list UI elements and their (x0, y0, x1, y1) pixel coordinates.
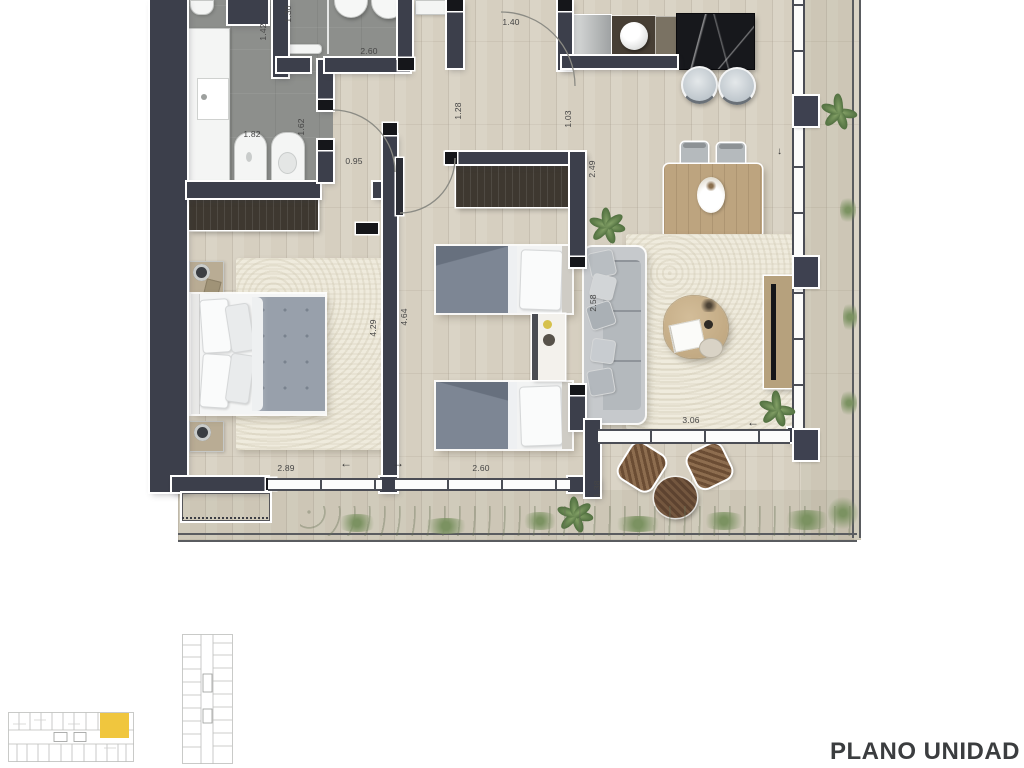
shrub-vine (841, 388, 857, 418)
wall-bedroom-divider (383, 135, 397, 477)
dim-label: 1.82 (237, 129, 267, 139)
window-bedroom1 (268, 478, 382, 491)
laundry-fixture (415, 0, 449, 15)
wall-end-cap (558, 0, 572, 11)
dim-label: 2.89 (271, 463, 301, 473)
bidet-drain-icon (246, 152, 252, 162)
wall-bedroom2-top (447, 152, 585, 164)
wall-bath2-bottom-a (277, 58, 310, 72)
twig-decor-icon (700, 299, 718, 312)
keyplan-floor-vertical (182, 634, 233, 764)
shrub (335, 514, 379, 532)
wall-bedroom2-right-upper (570, 152, 585, 267)
door-stop (318, 140, 333, 150)
nightstand-between-beds (532, 314, 565, 380)
slide-arrow-right-icon: → (392, 458, 404, 468)
door-leaf-bedroom2 (396, 158, 403, 215)
dim-label: 2.60 (354, 46, 384, 56)
dining-chair-1 (681, 142, 708, 166)
shrub-vine (840, 195, 856, 225)
faucet-icon (201, 94, 207, 100)
tray-icon (699, 338, 723, 358)
shrub (420, 518, 472, 534)
wall-end-cap (570, 257, 585, 267)
sheet-fold (252, 297, 263, 411)
lamp-icon (194, 424, 211, 441)
dim-label: 4.29 (368, 313, 378, 343)
deco-flower-icon (543, 320, 552, 329)
dim-label: 2.49 (587, 154, 597, 184)
dim-label: 1.38 (592, 474, 602, 504)
railing-planter-1 (794, 96, 818, 126)
headboard (191, 294, 200, 414)
dim-label: 1.28 (453, 96, 463, 126)
wall-end-cap (398, 58, 414, 70)
wall-end-cap (445, 152, 457, 164)
slide-arrow-down-icon: ↓ (777, 147, 782, 157)
dim-label: 2.60 (466, 463, 496, 473)
wall-bath2-right (398, 0, 412, 58)
dim-label: 1.30 (283, 0, 293, 29)
dim-label: 1.40 (496, 17, 526, 27)
wall-left-outer (150, 0, 187, 492)
shrub (610, 516, 666, 532)
sofa-pillow (586, 367, 616, 397)
pillow (519, 249, 563, 310)
highlighted-unit (100, 713, 129, 738)
shrub (780, 510, 834, 530)
balcony-edge-right (852, 0, 861, 538)
window-living (598, 429, 790, 444)
floor-plan-page: 1.30 1.42 2.60 1.40 1.82 1.62 0.95 1.28 … (0, 0, 1024, 768)
deco-bowl-icon (543, 334, 555, 346)
window-right-3 (792, 287, 805, 430)
wall-bottom-left (172, 477, 268, 492)
wall-end-cap (570, 385, 585, 395)
slide-arrow-left-icon: ← (340, 458, 352, 468)
railing-planter-2 (794, 257, 818, 287)
centerpiece-sprig-icon (705, 181, 717, 191)
double-bed (191, 294, 325, 414)
toilet-seat-icon (278, 152, 297, 174)
bar-stool-1 (681, 66, 718, 104)
twin-bed-2 (436, 382, 572, 449)
door-stop (318, 100, 333, 110)
cup-icon (704, 320, 713, 329)
pillow (519, 385, 563, 446)
tv-console (764, 276, 792, 388)
door-stop (383, 123, 397, 135)
slide-arrow-left-icon: ← (747, 417, 759, 427)
dim-label: 1.62 (296, 112, 306, 142)
dim-label: 3.06 (676, 415, 706, 425)
shrub (828, 496, 858, 530)
kitchen-island (677, 14, 754, 69)
dim-label: 0.95 (339, 156, 369, 166)
duvet (436, 382, 512, 449)
window-right-2 (792, 126, 805, 258)
balcony-planter-dotted (182, 517, 268, 519)
greenery-strip (300, 506, 856, 536)
washer-door-icon (620, 22, 648, 50)
railing-planter-3 (794, 430, 818, 460)
dim-label: 1.03 (563, 104, 573, 134)
sheet-fold (508, 246, 517, 313)
wardrobe-bedroom2 (456, 162, 568, 207)
shrub (520, 512, 560, 530)
dim-label: 2.58 (588, 288, 598, 318)
shrub-vine (843, 300, 857, 334)
wall-end-cap (356, 223, 378, 234)
duvet (436, 246, 512, 313)
nightstand-edge (532, 314, 538, 380)
dim-label: 1.42 (258, 17, 268, 47)
twin-bed-1 (436, 246, 572, 313)
shrub (700, 512, 748, 530)
window-bedroom2 (395, 478, 570, 491)
sheet-fold (508, 382, 517, 449)
shower-screen (327, 0, 329, 54)
bath-shelf (284, 44, 322, 54)
dim-label: 4.64 (399, 302, 409, 332)
sofa-pillow (589, 337, 616, 364)
tv-icon (771, 284, 776, 380)
keyplan-floor-horizontal (8, 712, 135, 763)
window-right-1 (792, 0, 805, 96)
sofa (584, 247, 645, 423)
wall-end-cap (447, 0, 463, 11)
page-title: PLANO UNIDAD (830, 738, 1020, 766)
wall-kitchen-front (562, 56, 677, 68)
wall-bedroom1-top (187, 182, 320, 198)
bar-stool-2 (718, 67, 756, 105)
